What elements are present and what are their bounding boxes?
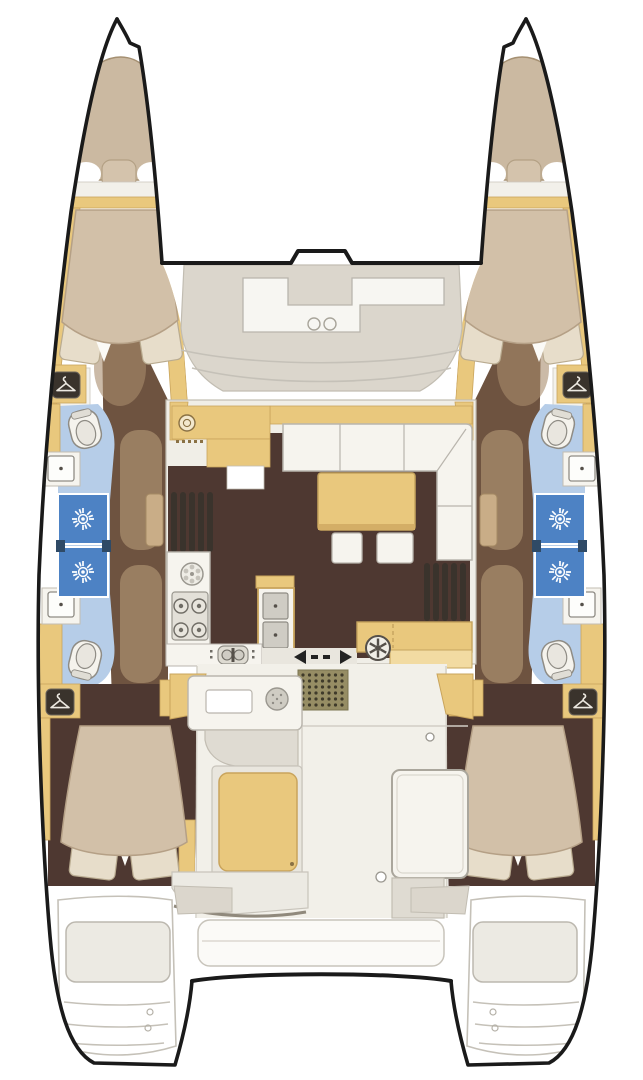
- aft-cabin-berth: [61, 726, 187, 881]
- bench-cushion: [219, 773, 297, 871]
- cup-holder: [426, 733, 434, 741]
- round-sink-icon: [179, 415, 195, 431]
- deck-fitting: [376, 872, 386, 882]
- stern-walkway: [174, 886, 232, 914]
- catamaran-floor-plan: [0, 0, 643, 1080]
- aft-crossbeam: [192, 974, 451, 981]
- deck-hatch: [308, 318, 320, 330]
- forward-crossbeam: [162, 251, 481, 263]
- doormat-grid-icon: [298, 670, 348, 710]
- salon: [166, 400, 476, 668]
- double-berth: [61, 726, 187, 856]
- galley-stove-unit: [167, 552, 210, 648]
- deck-hatch: [324, 318, 336, 330]
- bridgedeck: [166, 265, 476, 966]
- forward-cabin-shelf: [58, 197, 182, 208]
- cockpit-bench: [212, 766, 302, 878]
- ottoman: [377, 533, 413, 563]
- aft-bench: [198, 920, 444, 966]
- stool-wheel-icon: [366, 636, 390, 660]
- floor-plan-canvas: [0, 0, 643, 1080]
- cabin-door: [146, 494, 163, 546]
- cockpit: [170, 664, 473, 966]
- dining-table: [318, 473, 415, 530]
- stern-walkway: [411, 886, 469, 914]
- galley-counter-step: [207, 439, 270, 467]
- galley-hatch: [227, 466, 264, 489]
- foredeck: [181, 265, 462, 391]
- ottoman: [332, 533, 362, 563]
- window-shelf: [270, 406, 472, 424]
